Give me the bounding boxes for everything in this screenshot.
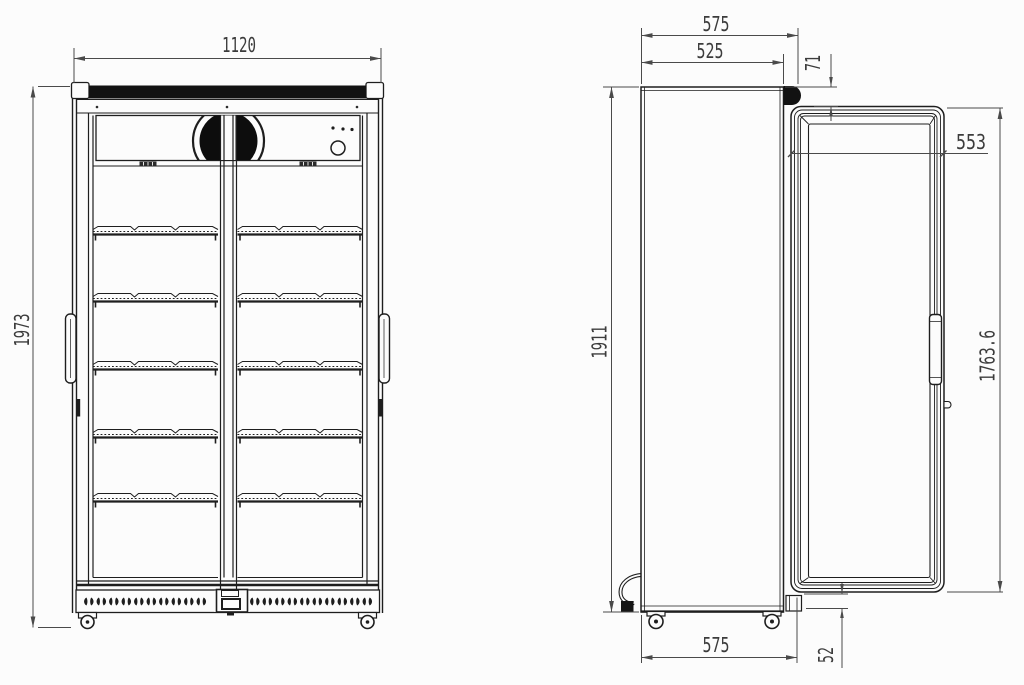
- label-front-height: 1973: [10, 314, 34, 347]
- side-view: [621, 86, 952, 629]
- door-lock-box: [215, 590, 250, 616]
- center-mullion: [221, 116, 237, 592]
- vent-slots: [140, 162, 317, 167]
- canopy-light-box: [89, 86, 366, 99]
- caster-side-left: [647, 612, 665, 629]
- label-door-width: 553: [956, 130, 986, 154]
- label-front-width: 1120: [222, 33, 256, 57]
- wire-shelves: [93, 227, 363, 508]
- caster-side-right: [763, 612, 781, 629]
- caster-front-left: [79, 613, 97, 629]
- label-door-bottom-offset: 52: [814, 647, 838, 663]
- fridge-dimension-drawing: 1120 1973 575 525 71 553 1911 1763.6 575…: [0, 0, 1024, 685]
- top-corner-cap-left: [72, 83, 90, 99]
- technical-drawing-page: 1120 1973 575 525 71 553 1911 1763.6 575…: [0, 0, 1024, 685]
- front-view: [66, 83, 390, 629]
- hinge-strike-left: [77, 399, 80, 417]
- door-frame-right: [363, 113, 368, 585]
- label-door-height: 1763.6: [976, 330, 1000, 382]
- cabinet-side-walls: [73, 84, 383, 613]
- dim-door-bottom-offset: [840, 583, 844, 668]
- label-body-height: 1911: [588, 326, 612, 359]
- thermostat-knob-icon: [331, 141, 345, 155]
- rivet-dots: [96, 106, 359, 109]
- door-handle-side: [930, 315, 942, 385]
- label-depth-body: 525: [697, 39, 724, 63]
- hinge-strike-right: [379, 399, 382, 417]
- drain-hose: [621, 575, 642, 612]
- glass-door-detail: [791, 107, 944, 593]
- top-hinge-cap: [784, 86, 802, 105]
- cabinet-body-side: [641, 87, 784, 612]
- door-frame-left: [89, 113, 94, 585]
- label-depth-overall: 575: [703, 12, 730, 36]
- label-base-depth: 575: [703, 633, 730, 657]
- top-corner-cap-right: [366, 83, 384, 99]
- caster-front-right: [359, 613, 377, 629]
- door-lock-tab: [944, 402, 951, 408]
- bottom-hinge-block: [786, 596, 802, 612]
- label-top-hinge-offset: 71: [801, 55, 825, 71]
